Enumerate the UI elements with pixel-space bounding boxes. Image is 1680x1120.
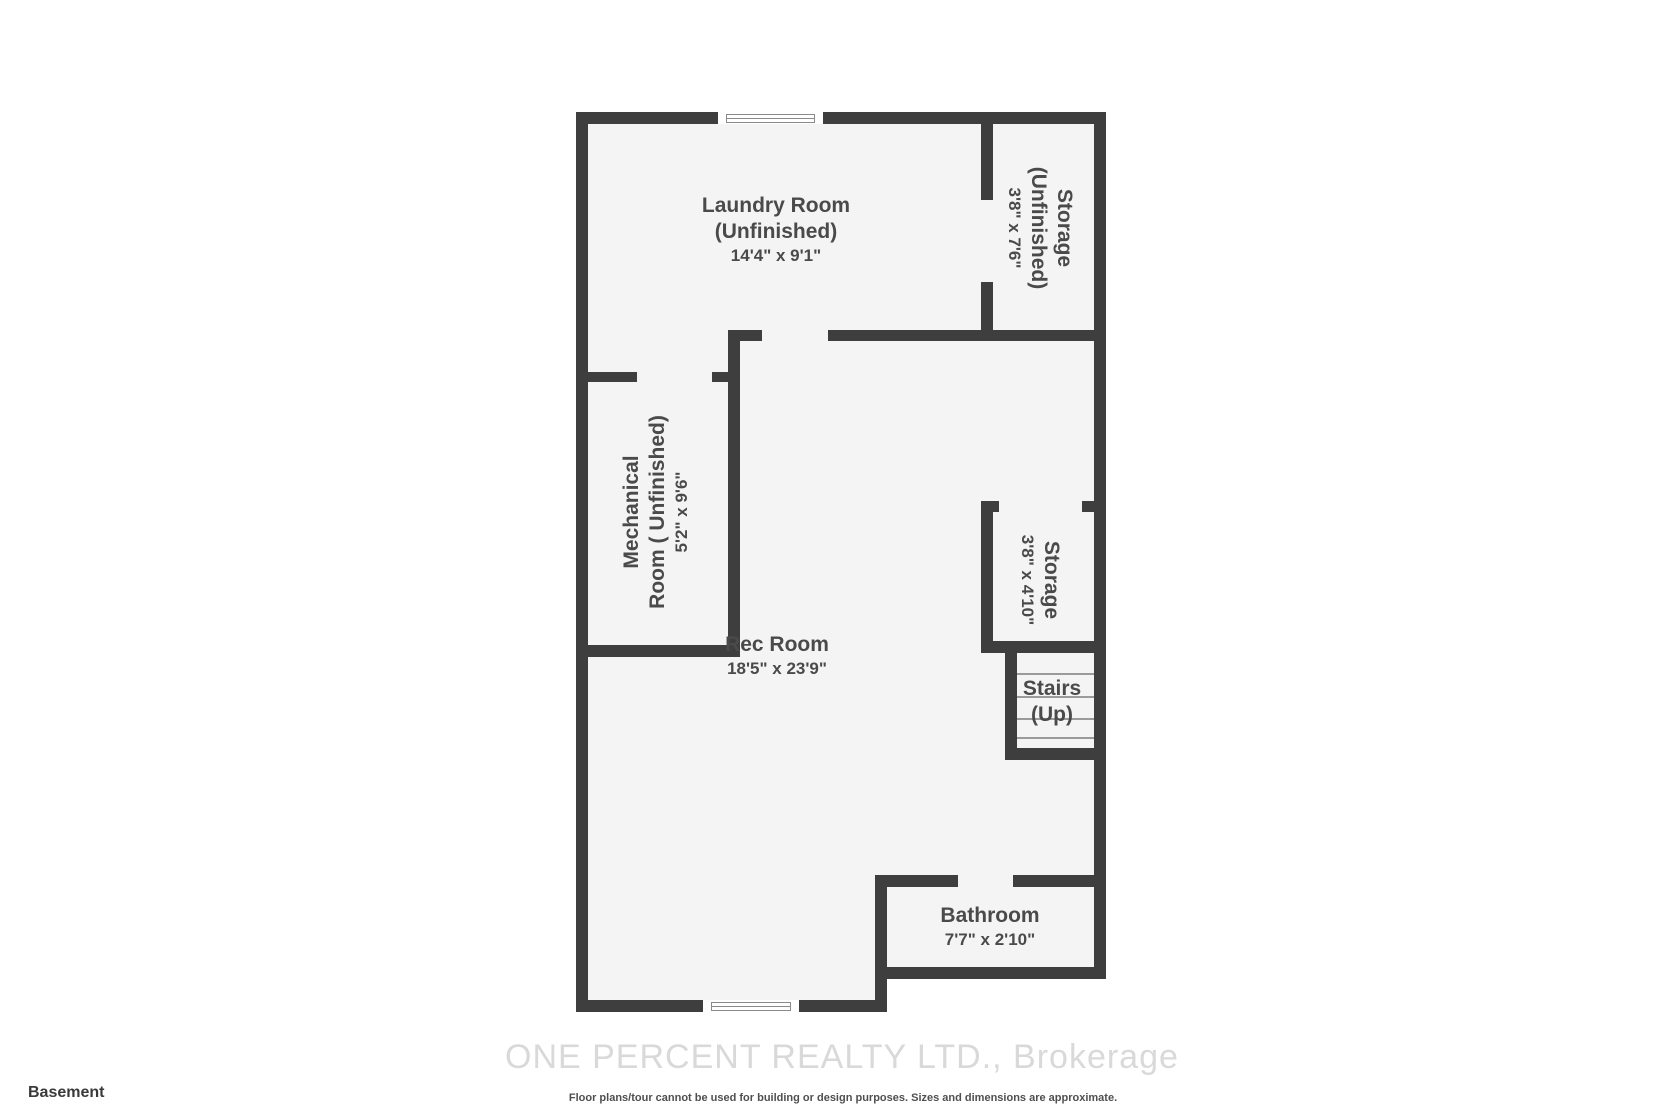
window-bottom [703, 1000, 799, 1012]
room-name: Laundry Room [702, 193, 850, 219]
wall-storage-top-partition-lower [981, 282, 993, 341]
wall-bathroom-bottom [875, 967, 1106, 979]
wall-stairs-left [1005, 653, 1017, 760]
wall-mechanical-top-left [582, 372, 637, 382]
room-dimensions: 3'8" x 7'6" [1003, 167, 1025, 289]
floorplan-canvas: Laundry Room (Unfinished) 14'4" x 9'1" S… [0, 0, 1680, 1120]
room-dimensions: 3'8" x 4'10" [1016, 535, 1038, 625]
room-name: Rec Room [725, 632, 829, 658]
outer-wall-left [576, 112, 588, 1012]
window-pane [726, 114, 814, 123]
room-name: Bathroom [940, 903, 1039, 929]
room-name: Storage [1038, 535, 1064, 625]
room-dimensions: 7'7" x 2'10" [940, 929, 1039, 951]
room-label-laundry: Laundry Room (Unfinished) 14'4" x 9'1" [702, 193, 850, 267]
room-label-storage-mid: Storage 3'8" x 4'10" [1016, 535, 1064, 625]
wall-storage-mid-top-right [1082, 501, 1094, 512]
room-name: Mechanical [619, 415, 645, 609]
outer-wall-right [1094, 112, 1106, 979]
room-name: Stairs [1023, 676, 1081, 702]
wall-bathroom-top-left [875, 875, 958, 887]
room-qualifier: (Unfinished) [1025, 167, 1051, 289]
room-dimensions: 5'2" x 9'6" [671, 415, 693, 609]
room-qualifier: (Unfinished) [702, 219, 850, 245]
wall-storage-mid-left [981, 501, 993, 653]
room-label-bathroom: Bathroom 7'7" x 2'10" [940, 903, 1039, 951]
stair-tread [1017, 737, 1094, 739]
brokerage-watermark: ONE PERCENT REALTY LTD., Brokerage [505, 1038, 1179, 1077]
wall-stairs-bottom [1005, 748, 1106, 760]
wall-mechanical-top-right [712, 372, 740, 382]
wall-bathroom-top-right [1013, 875, 1106, 887]
room-label-stairs: Stairs (Up) [1023, 676, 1081, 728]
wall-storage-mid-bottom [981, 641, 1106, 653]
wall-storage-mid-top-left [981, 501, 999, 512]
room-name: Storage [1051, 167, 1077, 289]
stair-tread [1017, 673, 1094, 675]
wall-mechanical-right [728, 341, 740, 657]
window-top [718, 112, 823, 124]
room-qualifier: (Up) [1023, 702, 1081, 728]
wall-mechanical-bottom [576, 645, 740, 657]
room-label-mechanical: Mechanical Room ( Unfinished) 5'2" x 9'6… [619, 415, 693, 609]
floor-title: Basement [28, 1084, 104, 1102]
room-dimensions: 14'4" x 9'1" [702, 245, 850, 267]
wall-laundry-rec-left [728, 330, 762, 341]
wall-laundry-rec-right [828, 330, 1106, 341]
wall-storage-top-partition-upper [981, 122, 993, 200]
wall-bathroom-left [875, 875, 887, 1012]
room-label-storage-top: Storage (Unfinished) 3'8" x 7'6" [1003, 167, 1077, 289]
room-dimensions: 18'5" x 23'9" [725, 658, 829, 680]
room-label-rec-room: Rec Room 18'5" x 23'9" [725, 632, 829, 680]
outer-wall-top [576, 112, 1106, 124]
room-name: Room ( Unfinished) [645, 415, 671, 609]
window-pane [711, 1002, 792, 1011]
disclaimer-text: Floor plans/tour cannot be used for buil… [569, 1092, 1117, 1104]
